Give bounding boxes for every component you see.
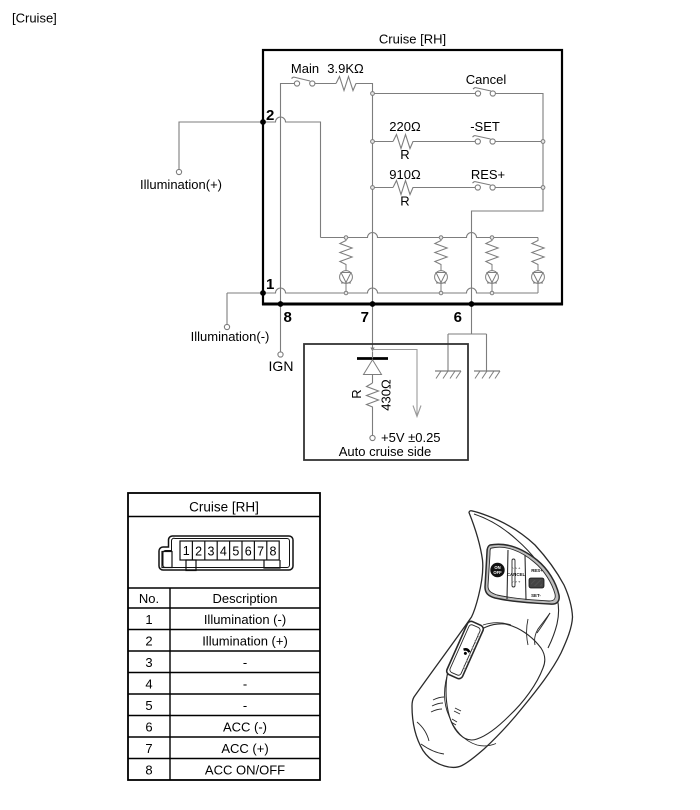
svg-text:RES+: RES+: [471, 167, 505, 182]
svg-text:Illumination (+): Illumination (+): [202, 634, 288, 649]
svg-text:4: 4: [220, 545, 227, 559]
svg-text:7: 7: [257, 545, 264, 559]
svg-text:R: R: [400, 147, 409, 162]
svg-text:CANCEL: CANCEL: [507, 572, 526, 577]
svg-text:ACC (+): ACC (+): [221, 741, 268, 756]
svg-text:910Ω: 910Ω: [389, 167, 421, 182]
svg-text:ACC ON/OFF: ACC ON/OFF: [205, 763, 285, 778]
svg-text:8: 8: [145, 763, 152, 778]
svg-text:1: 1: [145, 612, 152, 627]
svg-text:220Ω: 220Ω: [389, 119, 421, 134]
svg-text:7: 7: [145, 741, 152, 756]
svg-text:8: 8: [270, 545, 277, 559]
svg-text:6: 6: [145, 720, 152, 735]
svg-text:-: -: [243, 655, 247, 670]
svg-text:Cruise [RH]: Cruise [RH]: [189, 500, 259, 515]
svg-text:6: 6: [454, 309, 462, 326]
svg-text:430Ω: 430Ω: [379, 379, 394, 411]
svg-text:[Cruise]: [Cruise]: [12, 11, 57, 26]
svg-text:Illumination (-): Illumination (-): [204, 612, 286, 627]
svg-text:SET-: SET-: [531, 593, 541, 598]
svg-text:-: -: [243, 677, 247, 692]
svg-text:IGN: IGN: [269, 358, 294, 374]
svg-text:Auto cruise side: Auto cruise side: [339, 444, 432, 459]
svg-text:No.: No.: [139, 591, 159, 606]
svg-text:Cruise [RH]: Cruise [RH]: [379, 32, 446, 47]
svg-text:3.9KΩ: 3.9KΩ: [327, 61, 364, 76]
svg-text:2: 2: [195, 545, 202, 559]
svg-text:2: 2: [266, 107, 274, 124]
svg-text:8: 8: [284, 309, 292, 326]
svg-text:Description: Description: [212, 591, 277, 606]
svg-text:Cancel: Cancel: [466, 72, 507, 87]
svg-text:5: 5: [145, 698, 152, 713]
svg-text:R: R: [349, 389, 364, 398]
svg-text:5: 5: [232, 545, 239, 559]
svg-text:7: 7: [361, 309, 369, 326]
svg-text:ACC (-): ACC (-): [223, 720, 267, 735]
svg-text:2: 2: [145, 634, 152, 649]
svg-text:Illumination(+): Illumination(+): [140, 177, 222, 192]
svg-text:3: 3: [145, 655, 152, 670]
svg-text:R: R: [400, 194, 409, 209]
svg-text:4: 4: [145, 677, 152, 692]
svg-text:1: 1: [266, 276, 274, 293]
svg-text:▲▲▲: ▲▲▲: [511, 566, 521, 570]
svg-text:RES+: RES+: [531, 568, 543, 573]
svg-text:Illumination(-): Illumination(-): [191, 329, 270, 344]
svg-text:3: 3: [208, 545, 215, 559]
svg-text:6: 6: [245, 545, 252, 559]
svg-text:▼▼▼: ▼▼▼: [511, 580, 521, 584]
svg-text:1: 1: [183, 544, 190, 558]
svg-text:Main: Main: [291, 61, 319, 76]
svg-text:+5V ±0.25: +5V ±0.25: [381, 430, 441, 445]
svg-text:-SET: -SET: [470, 119, 500, 134]
svg-text:-: -: [243, 698, 247, 713]
svg-text:OFF: OFF: [493, 570, 502, 575]
